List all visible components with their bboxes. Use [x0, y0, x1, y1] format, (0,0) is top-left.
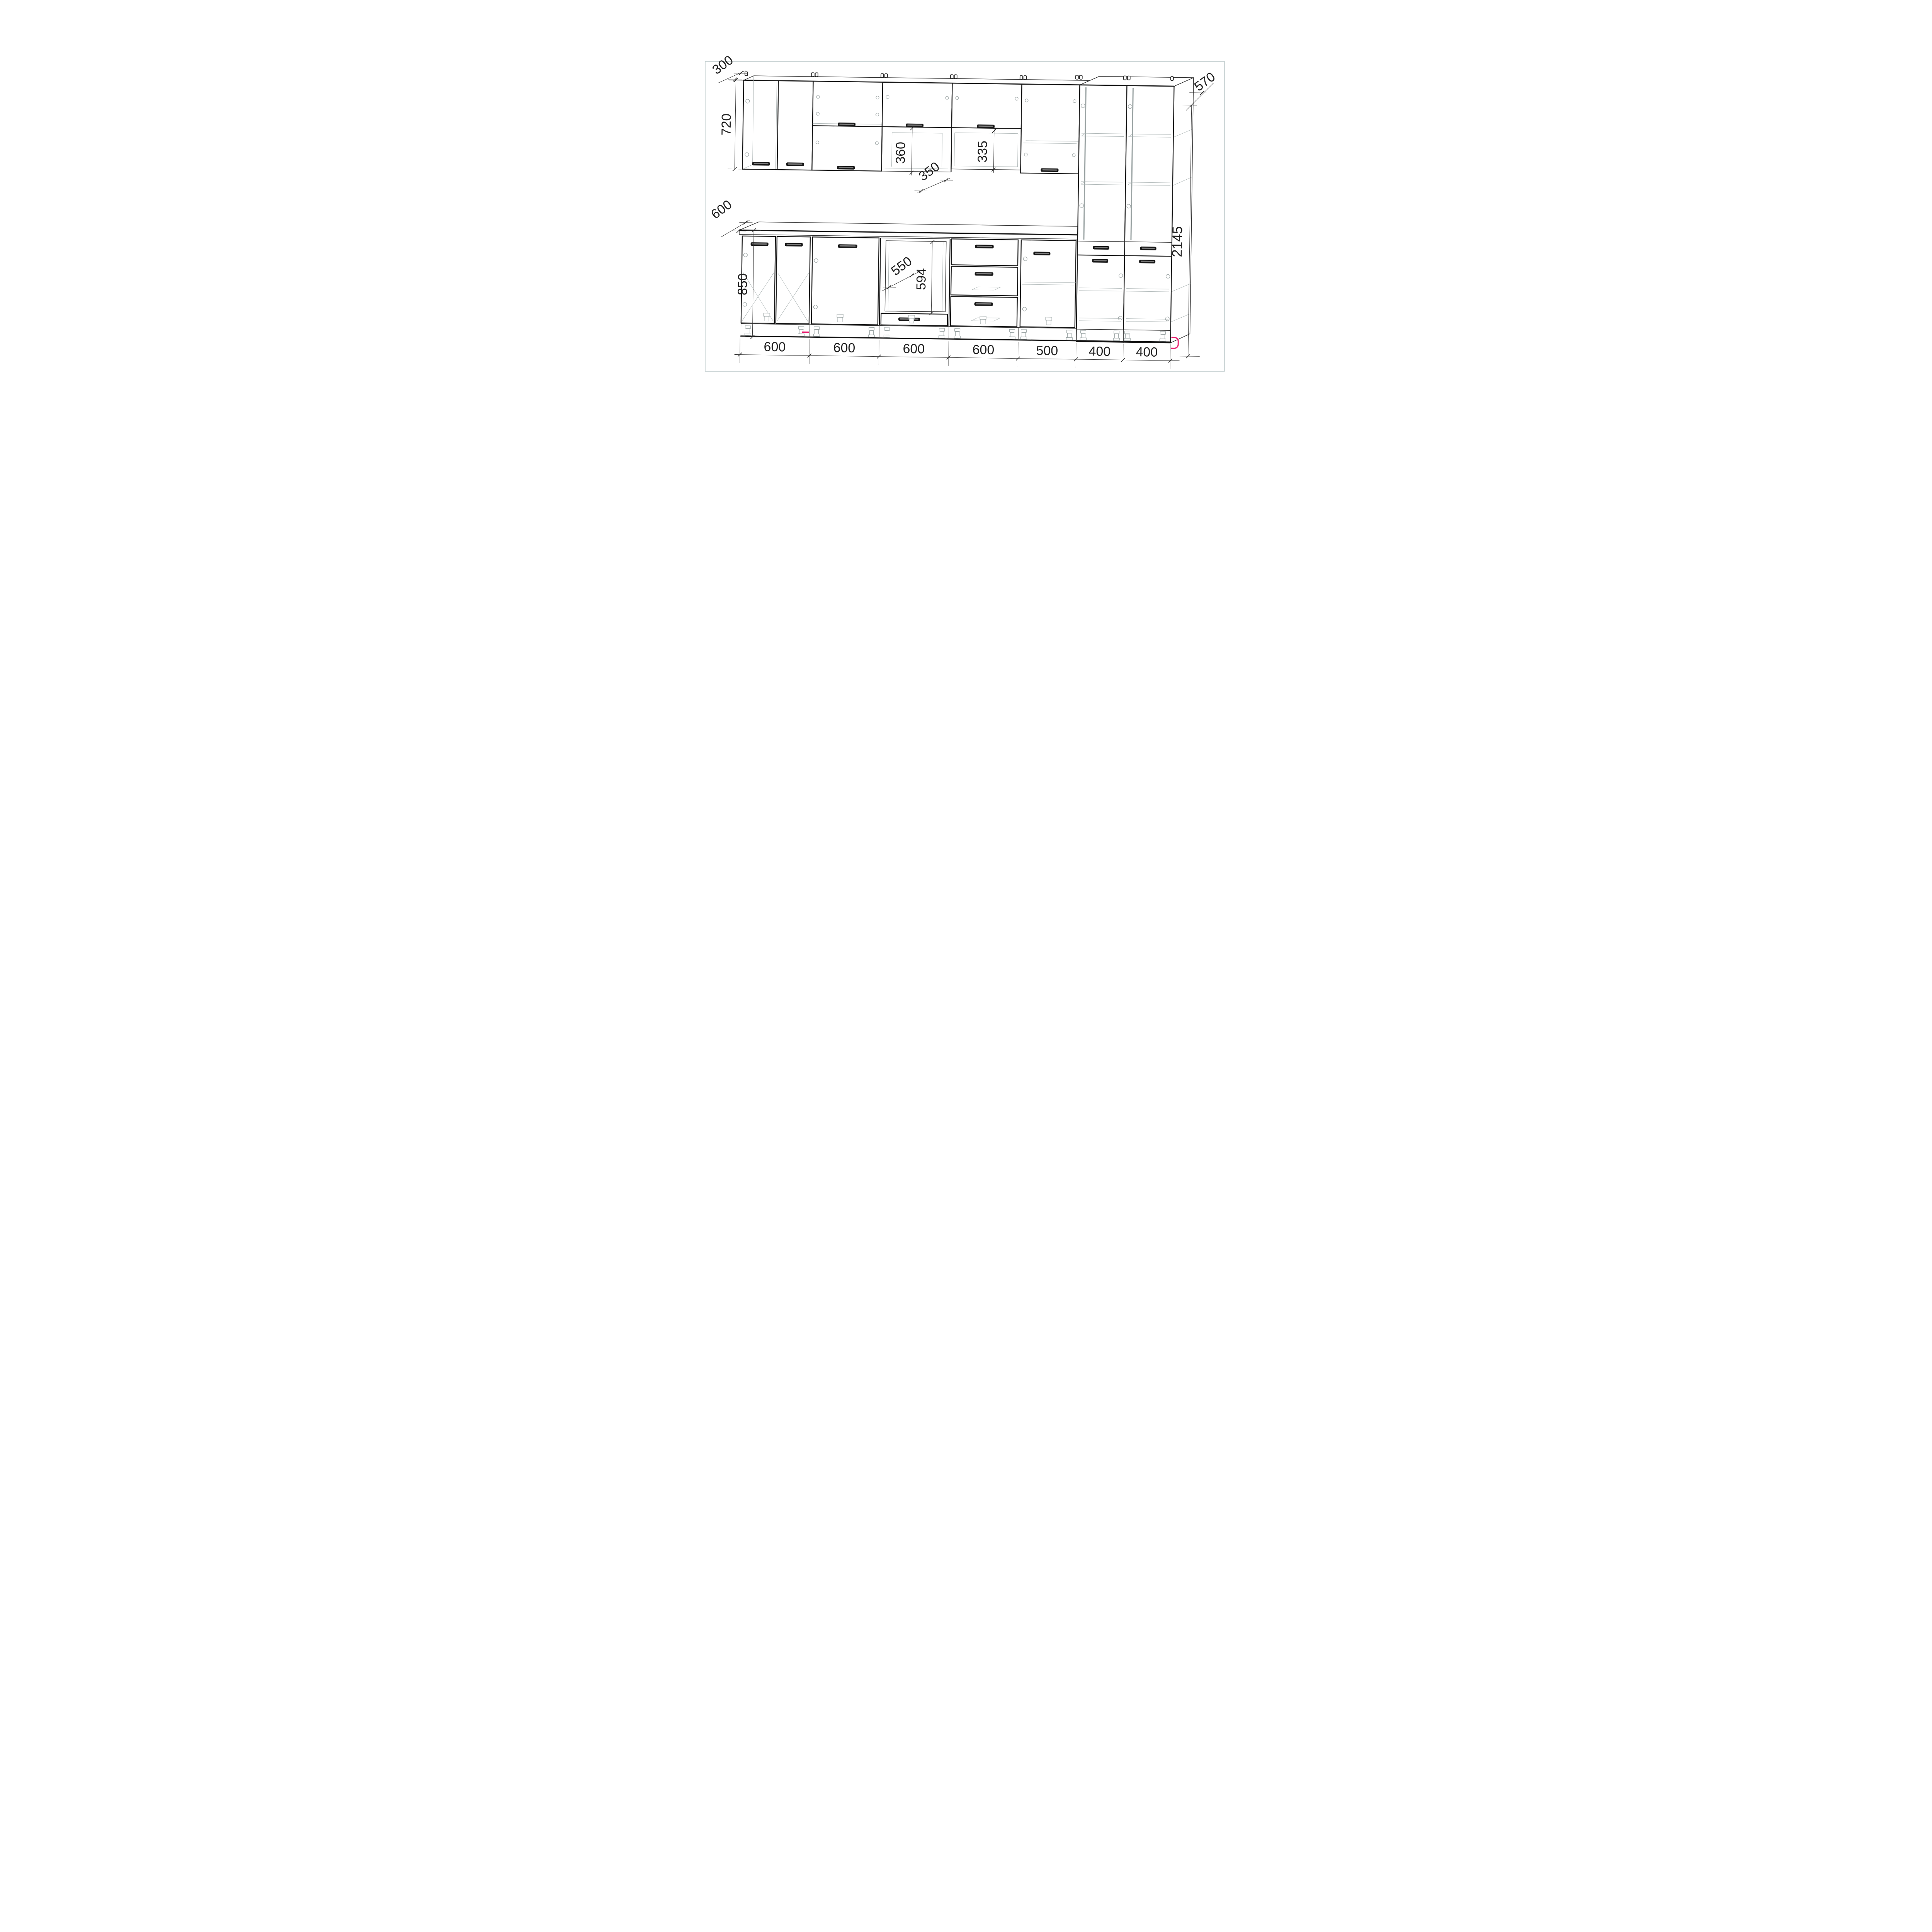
dim-width-7: 400 [1136, 345, 1158, 360]
dim-wall-height-label: 720 [719, 114, 734, 136]
base-cabinet-4-drawer-stack [951, 239, 1018, 327]
dim-width-5: 500 [1036, 343, 1058, 358]
base-cabinet-1-double-door [741, 236, 810, 324]
dim-wall-height: 720 [718, 78, 743, 171]
door-handle [751, 242, 769, 246]
door-handle [977, 124, 995, 128]
door-handle [838, 244, 857, 248]
dim-open-shelf-depth: 350 [915, 159, 954, 193]
door-handle [1139, 260, 1155, 264]
door-handle [1041, 168, 1058, 172]
kitchen-elevation-drawing: 300 720 360 [704, 0, 1228, 429]
dim-tall-depth-label: 570 [1192, 70, 1218, 94]
dim-width-1: 600 [764, 340, 786, 355]
accent-mark-plinth [802, 332, 809, 333]
base-cabinet-2-appliance-door [811, 237, 879, 325]
door-handle [752, 162, 770, 166]
dim-width-6: 400 [1088, 344, 1111, 359]
drawer-handle [975, 245, 994, 248]
wall-cabinet-5-single-door [1020, 84, 1080, 174]
drawing-canvas: 300 720 360 [704, 0, 1228, 429]
door-handle [906, 124, 923, 128]
door-handle [785, 243, 803, 247]
dim-tall-height-label: 2145 [1169, 226, 1185, 257]
dim-open-gap-height-label: 360 [893, 142, 908, 164]
drawer-handle [975, 302, 993, 306]
dim-width-chain: 600 600 600 600 500 400 400 [734, 338, 1180, 369]
dim-open-shelf-depth-label: 350 [916, 159, 942, 184]
dim-open-gap-height: 360 [893, 126, 914, 175]
dim-width-4: 600 [972, 342, 994, 357]
drawer-handle [975, 272, 993, 276]
dim-width-2: 600 [833, 340, 855, 355]
door-handle [786, 162, 804, 166]
perspective-group: 300 720 360 [706, 52, 1218, 369]
dim-width-3: 600 [903, 342, 925, 357]
wall-cabinet-3-flipup-open [881, 82, 952, 172]
dim-wall-depth-label: 300 [709, 53, 736, 77]
base-cabinet-5-single-door [1020, 240, 1077, 328]
tall-cabinet-2 [1123, 86, 1174, 343]
drawer-handle [1140, 247, 1156, 250]
dim-open-niche-height-label: 335 [975, 141, 990, 163]
dim-base-height-label: 850 [735, 273, 750, 295]
door-handle [837, 166, 855, 170]
drawer-handle [1093, 246, 1109, 250]
door-handle [1033, 252, 1050, 255]
dim-oven-niche-height-label: 594 [914, 268, 929, 290]
wall-cabinet-1-double-door [742, 76, 813, 170]
tall-cabinet-1 [1076, 85, 1127, 342]
wall-cabinet-2-flipup-pair [812, 81, 883, 171]
dim-wall-depth: 300 [709, 52, 748, 83]
door-handle [1092, 259, 1108, 263]
door-handle [838, 122, 855, 126]
dim-counter-depth-label: 600 [708, 197, 735, 222]
